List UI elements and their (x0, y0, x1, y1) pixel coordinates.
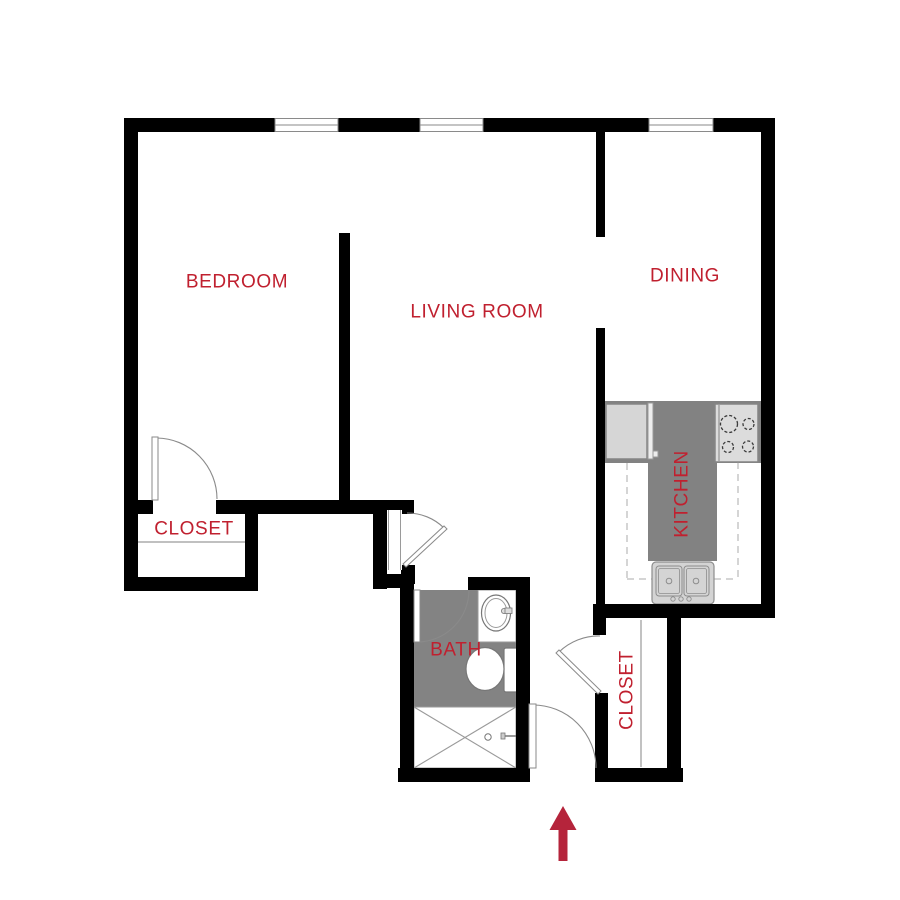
closet-bedroom-label: CLOSET (154, 519, 234, 540)
faucet-lever-icon (505, 608, 512, 614)
entry-door-arc (533, 705, 596, 768)
floor-plan: BEDROOM LIVING ROOM DINING CLOSET BATH K… (0, 0, 900, 900)
sink-basin-right (684, 566, 709, 596)
refrigerator-handle-icon (653, 451, 658, 457)
wall-kitchen-bottom (593, 604, 775, 618)
bath-door-leaf (414, 590, 420, 642)
wall-closet-entry-left-lower (595, 693, 608, 768)
wall-closet-bedroom-bottom (124, 577, 258, 591)
bedroom-label: BEDROOM (186, 272, 288, 293)
refrigerator-door-icon (648, 403, 653, 459)
stove-icon (715, 404, 758, 462)
entry-arrow-shaft (559, 828, 568, 861)
hall-doorway-opening (387, 510, 402, 570)
wall-closet-entry-right (667, 608, 681, 782)
wall-living-dining-divider-upper (596, 118, 605, 237)
wall-bedroom-living-divider (339, 233, 350, 514)
entry-door-leaf (529, 704, 536, 768)
bath-label: BATH (430, 640, 482, 661)
bedroom-door-leaf (152, 437, 158, 500)
hall-door-leaf (403, 526, 447, 567)
wall-living-dining-divider-lower (596, 328, 605, 618)
room-labels: BEDROOM LIVING ROOM DINING CLOSET BATH K… (154, 266, 720, 730)
wall-bath-right (516, 577, 530, 782)
faucet-knob (687, 597, 691, 601)
floor-plan-canvas: BEDROOM LIVING ROOM DINING CLOSET BATH K… (0, 0, 900, 900)
doors (152, 437, 601, 768)
shower-valve-icon (501, 733, 505, 739)
shower-drain-icon (485, 734, 491, 740)
closet-door-leaf (556, 650, 601, 694)
wall-right-exterior (761, 118, 775, 618)
wall-bottom-left (398, 768, 530, 782)
bath-area (414, 590, 528, 768)
closet-door-arc (559, 636, 600, 652)
dining-label: DINING (650, 266, 720, 287)
refrigerator-icon (606, 404, 647, 459)
faucet-knob (671, 597, 675, 601)
hall-door-arc (407, 513, 444, 528)
kitchen-label: KITCHEN (672, 450, 693, 538)
entry-arrow (550, 806, 577, 861)
closet-entry-label: CLOSET (617, 650, 638, 730)
wall-bath-left (400, 574, 414, 782)
living-room-label: LIVING ROOM (410, 302, 543, 323)
wall-left-exterior (124, 118, 138, 591)
wall-closet-entry-left-upper (593, 608, 606, 635)
bedroom-door-arc (157, 438, 217, 499)
faucet-knob (679, 597, 683, 601)
wall-bedroom-south-a (138, 500, 153, 514)
entry-arrow-head (550, 806, 577, 830)
sink-basin-left (656, 566, 682, 596)
